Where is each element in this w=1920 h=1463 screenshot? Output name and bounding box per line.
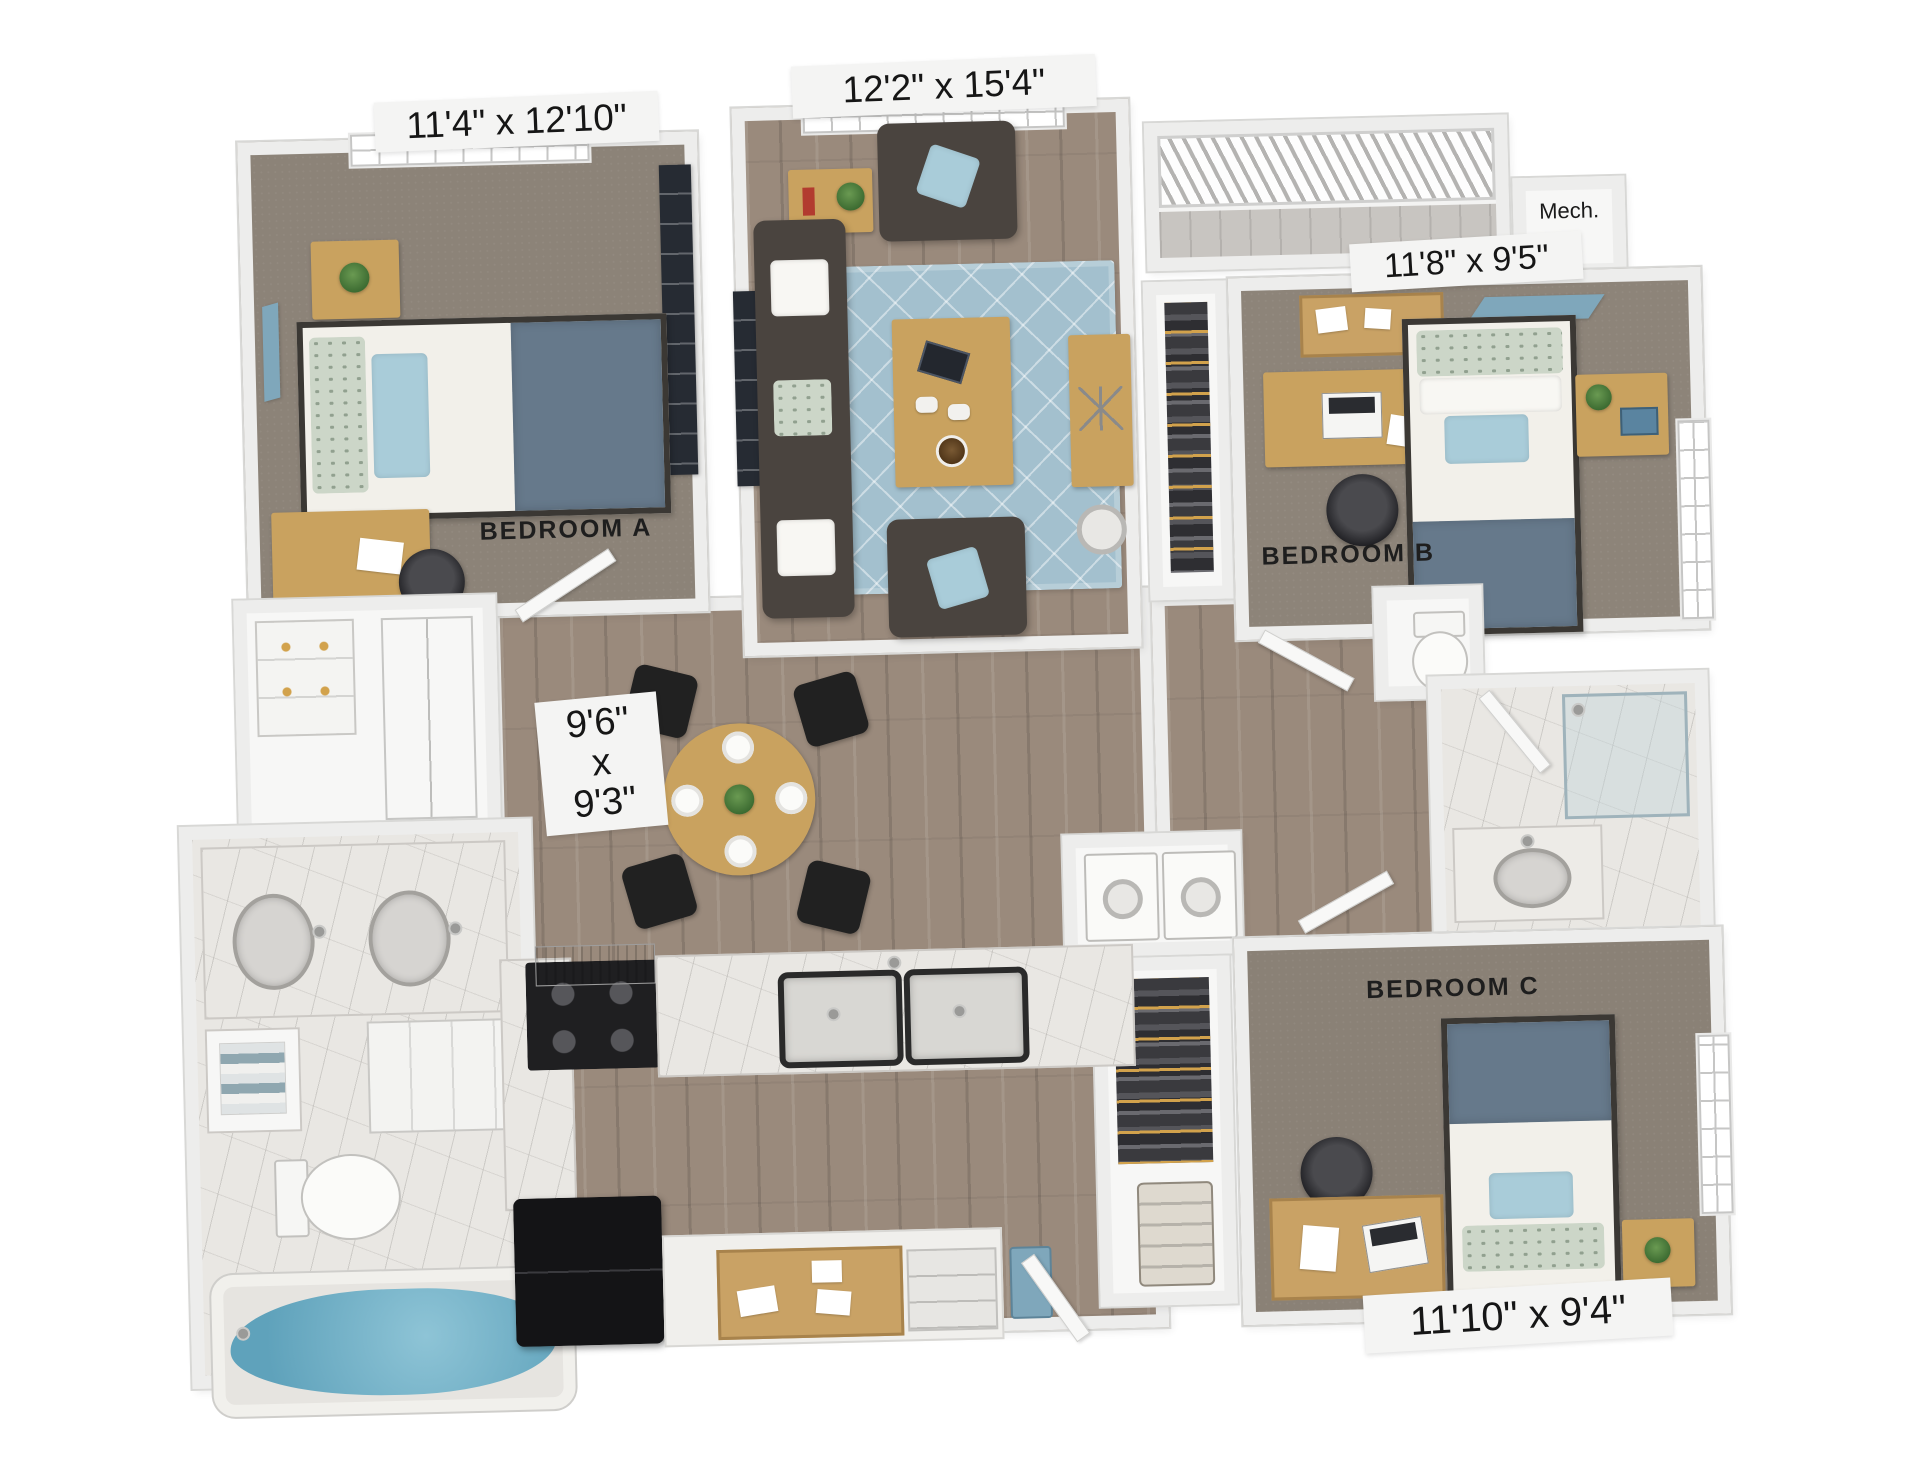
dim-dining-card: 9'6" x 9'3" [534, 691, 668, 836]
pillow-white [776, 519, 835, 576]
nightstand-b [1575, 373, 1669, 457]
blanket [1447, 1020, 1611, 1124]
linen-shelf [205, 1027, 303, 1133]
drawer-unit [906, 1247, 998, 1331]
plate [671, 784, 704, 817]
dim-bedroom-b-text: 11'8" x 9'5" [1383, 237, 1550, 286]
pillow-floral [1462, 1222, 1605, 1271]
plate [775, 782, 808, 815]
laptop [1362, 1216, 1429, 1273]
faucet-icon [450, 923, 460, 933]
dim-dining-line3: 9'3" [572, 781, 638, 827]
notebook [357, 538, 404, 575]
coffee-table [892, 317, 1014, 488]
faucet-icon [889, 958, 899, 968]
pillow-blue [1489, 1171, 1574, 1219]
faucet-icon [1522, 836, 1532, 846]
tablet [917, 340, 970, 384]
room-bathroom-b [1427, 670, 1713, 945]
faucet-icon [314, 927, 324, 937]
pinned-paper [812, 1260, 843, 1283]
room-bedroom-a: BEDROOM A [237, 131, 709, 622]
pillow-white [770, 259, 829, 316]
bedroom-c-label: BEDROOM C [1366, 972, 1540, 1005]
hanging-clothes [1164, 302, 1214, 573]
refrigerator [513, 1195, 665, 1347]
dryer-lid [1180, 877, 1221, 918]
armchair-top [877, 120, 1018, 241]
drain [954, 1006, 964, 1016]
mech-label: Mech. [1526, 197, 1613, 225]
room-bedroom-c: BEDROOM C [1234, 926, 1731, 1325]
window-icon [1677, 420, 1714, 620]
kitchen-counter-bottom [662, 1227, 1005, 1347]
blanket [511, 319, 666, 511]
laptop-screen [1328, 396, 1375, 414]
desk-chair-b [1326, 473, 1400, 547]
game-controller [948, 404, 970, 421]
pinned-paper [1315, 306, 1348, 334]
dim-living-text: 12'2" x 15'4" [842, 61, 1047, 111]
notepad [1300, 1225, 1339, 1272]
plant-icon [836, 182, 865, 211]
armchair-bottom [886, 516, 1027, 637]
double-vanity [200, 840, 509, 1019]
wall-clock-icon [1078, 386, 1123, 431]
floorplan-page: { "floorplan": { "type": "apartment-3d-f… [0, 0, 1920, 1440]
laptop-screen [1369, 1222, 1418, 1247]
sofa [753, 219, 855, 619]
closet-doors [381, 616, 478, 820]
dim-bedroom-c-text: 11'10" x 9'4" [1409, 1287, 1628, 1345]
books [1620, 407, 1659, 436]
balcony-railing-icon [1157, 128, 1496, 208]
toilet-bowl [300, 1153, 402, 1241]
bedroom-a-label: BEDROOM A [479, 513, 652, 546]
dim-dining-line1: 9'6" [564, 701, 630, 747]
console-table [1068, 334, 1134, 487]
kitchen-sink-right [903, 966, 1029, 1065]
pillow-white [1419, 375, 1562, 414]
dim-bedroom-a-text: 11'4" x 12'10" [405, 96, 627, 147]
pinned-paper [737, 1285, 779, 1317]
sink-icon [1493, 847, 1572, 909]
pillow-floral [309, 336, 369, 493]
pinned-paper [1364, 308, 1391, 330]
range-hood-icon [535, 944, 656, 987]
centerpiece-plant-icon [724, 784, 755, 815]
plant-icon [1585, 384, 1612, 411]
pillow-blue [371, 353, 430, 478]
desk-c [1269, 1194, 1445, 1300]
washer-lid [1102, 879, 1143, 920]
laptop [1322, 392, 1383, 439]
hall-closet-area [233, 594, 501, 840]
bed-c [1441, 1014, 1622, 1298]
laundry-closet [1062, 831, 1243, 957]
washer [1084, 852, 1160, 942]
room-bathroom-a [179, 819, 545, 1389]
plant-icon [1644, 1237, 1671, 1264]
door [1479, 690, 1551, 774]
window-icon [1697, 1034, 1733, 1214]
pillow-blue [926, 546, 991, 611]
dresser [255, 619, 357, 737]
suitcase [1137, 1181, 1216, 1287]
vanity-b [1452, 824, 1604, 923]
bowl [939, 438, 966, 465]
plate [724, 835, 757, 868]
showerhead-icon [1573, 705, 1583, 715]
game-controller [916, 396, 938, 413]
dryer [1162, 850, 1238, 940]
built-in-desk-corkboard [716, 1246, 904, 1341]
plate [722, 731, 755, 764]
sink-icon [231, 893, 315, 991]
shower [1562, 691, 1690, 819]
towels [219, 1042, 287, 1116]
nightstand [311, 240, 401, 320]
dim-dining-line2: x [590, 743, 613, 785]
book [802, 187, 815, 215]
plant-icon [339, 262, 370, 293]
bath-water [229, 1285, 557, 1399]
pillow-floral [773, 379, 832, 436]
kitchen-counter-top [655, 944, 1136, 1078]
sink-icon [367, 890, 451, 988]
pillow-blue [1444, 414, 1529, 464]
floor-plan: BEDROOM A [0, 0, 1920, 1463]
bedroom-b-label: BEDROOM B [1261, 538, 1435, 571]
kitchen-sink-left [778, 970, 904, 1069]
bed-a [296, 313, 671, 522]
pillow-floral [1416, 327, 1563, 377]
vanity-cabinet [367, 1018, 524, 1134]
pillow-blue [915, 143, 981, 209]
wall-art-icon [262, 303, 280, 402]
pinned-paper [816, 1289, 852, 1316]
coat-closet [1143, 280, 1236, 600]
drain [828, 1009, 838, 1019]
room-bedroom-b: BEDROOM B [1228, 267, 1710, 640]
room-living [731, 99, 1141, 657]
